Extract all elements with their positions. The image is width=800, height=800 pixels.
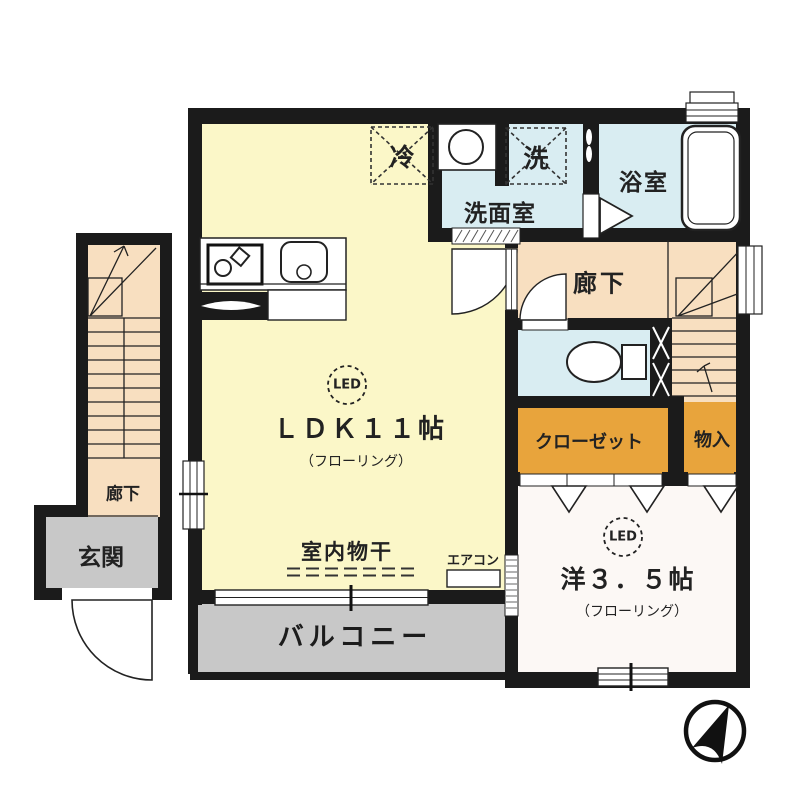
toilet-door-x (653, 327, 669, 396)
corridor-door (506, 249, 517, 310)
genkan-door (62, 588, 152, 680)
label-washer: 洗 (523, 139, 548, 175)
window-ldk-left (179, 461, 208, 529)
toilet-door (520, 274, 568, 330)
floor-plan: 冷 洗 洗面室 浴室 廊下 クローゼット 物入 LED ＬＤＫ１１帖 （フローリ… (0, 0, 800, 800)
label-aircon: エアコン (447, 550, 499, 569)
label-indoor-drying: 室内物干 (301, 536, 393, 566)
label-ldk: ＬＤＫ１１帖 (273, 409, 447, 446)
kitchen-counter (196, 238, 346, 320)
label-washroom: 洗面室 (464, 194, 536, 228)
label-western-flooring: （フローリング） (576, 601, 688, 621)
label-genkan: 玄関 (78, 538, 124, 572)
label-led-ldk: LED (333, 378, 361, 393)
upper-stairs (668, 240, 748, 396)
label-led-western: LED (609, 530, 637, 545)
floorplan-details-layer (0, 0, 800, 800)
label-fridge: 冷 (389, 138, 414, 174)
bathtub (682, 126, 740, 230)
window-stairs-right (738, 246, 762, 314)
washbasin (438, 124, 496, 170)
left-stairs (88, 246, 160, 516)
washroom-threshold (452, 228, 520, 244)
toilet-fixture (567, 342, 646, 382)
label-corridor-upper: 廊下 (573, 264, 627, 299)
window-balcony (215, 585, 428, 611)
label-balcony: バルコニー (278, 617, 432, 654)
label-closet: クローゼット (535, 428, 643, 454)
label-western: 洋３．５帖 (560, 560, 695, 596)
closet-doors (520, 474, 738, 512)
window-ldk-western (505, 555, 518, 616)
window-bath-top (686, 92, 738, 122)
label-ldk-flooring: （フローリング） (300, 451, 412, 471)
aircon-box (447, 570, 500, 587)
compass-icon (686, 702, 744, 764)
label-corridor-left: 廊下 (106, 480, 140, 505)
label-storage: 物入 (694, 426, 730, 452)
label-bathroom: 浴室 (619, 163, 669, 197)
window-western-bottom (598, 663, 668, 691)
